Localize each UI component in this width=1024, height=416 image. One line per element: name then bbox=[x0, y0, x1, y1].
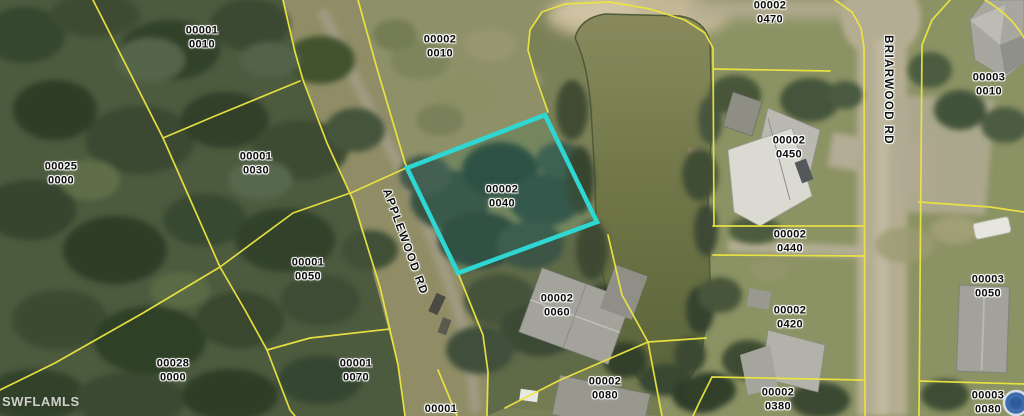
parcel-map[interactable]: 0000100100000200100000204700000300100002… bbox=[0, 0, 1024, 416]
pool-center bbox=[1010, 397, 1022, 409]
watermark: SWFLAMLS bbox=[2, 394, 80, 409]
road-label-briarwood: BRIARWOOD RD bbox=[882, 35, 894, 145]
building-0050 bbox=[957, 285, 1010, 373]
map-overlay bbox=[0, 0, 1024, 416]
